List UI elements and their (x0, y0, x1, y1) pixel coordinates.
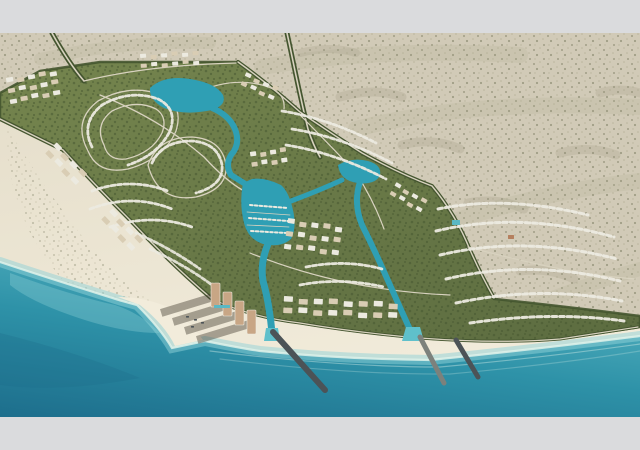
aerial-masterplan-photo (0, 33, 640, 417)
building-roof (359, 301, 368, 307)
building-roof (161, 53, 167, 57)
building-roof (286, 231, 294, 237)
building-roof (296, 244, 304, 250)
letterbox-bar-bottom (0, 417, 640, 450)
building-roof (323, 223, 331, 229)
building-roof (358, 312, 367, 318)
building-roof (182, 60, 188, 64)
building-roof (260, 152, 267, 157)
tower-pool-deck (214, 305, 230, 308)
building-roof (389, 303, 398, 309)
building-roof (172, 61, 178, 65)
building-roof (298, 232, 306, 238)
spit-boat-mark (191, 326, 194, 328)
building-roof (270, 149, 277, 154)
building-roof (299, 299, 308, 305)
building-roof (388, 312, 397, 318)
spit-boat-mark (201, 322, 204, 324)
building-roof (314, 299, 323, 305)
tower-building (223, 292, 232, 316)
building-roof (331, 249, 339, 255)
building-roof (140, 54, 146, 58)
building-roof (329, 298, 338, 304)
building-roof (313, 310, 322, 316)
building-roof (321, 236, 329, 242)
building-roof (287, 218, 295, 224)
letterbox-bar-top (0, 0, 640, 33)
building-roof (374, 301, 383, 307)
building-roof (151, 62, 157, 66)
building-roof (298, 307, 307, 313)
screenshot-frame (0, 0, 640, 450)
desert-mottle (600, 90, 640, 93)
building-roof (281, 157, 288, 162)
building-roof (308, 245, 316, 251)
building-roof (162, 63, 168, 67)
building-roof (284, 244, 292, 250)
building-roof (192, 51, 198, 55)
building-roof (343, 310, 352, 316)
building-roof (182, 53, 188, 57)
building-roof (171, 51, 177, 55)
scene-layers (0, 33, 640, 417)
desert-mottle (300, 49, 356, 53)
building-roof (151, 55, 157, 59)
tower-building (235, 301, 244, 325)
building-roof (333, 237, 341, 243)
building-roof (193, 61, 199, 65)
villa-pool (452, 220, 460, 225)
building-roof (271, 160, 278, 165)
desert-mottle (340, 92, 402, 97)
building-roof (373, 312, 382, 318)
building-roof (328, 310, 337, 316)
building-roof (335, 227, 343, 233)
aerial-masterplan-render (0, 33, 640, 417)
building-roof (284, 296, 293, 302)
building-roof (280, 147, 287, 152)
tower-building (247, 310, 256, 334)
building-roof (261, 159, 268, 164)
building-roof (309, 235, 317, 241)
building-roof (251, 162, 258, 167)
building-roof (283, 307, 292, 313)
terracotta-building (508, 235, 514, 239)
spit-boat-mark (194, 319, 197, 321)
building-roof (319, 249, 327, 255)
building-roof (311, 222, 319, 228)
building-roof (299, 222, 307, 228)
spit-boat-mark (186, 316, 189, 318)
tower-building (211, 283, 220, 307)
building-roof (141, 64, 147, 68)
building-roof (250, 151, 257, 156)
building-roof (344, 301, 353, 307)
